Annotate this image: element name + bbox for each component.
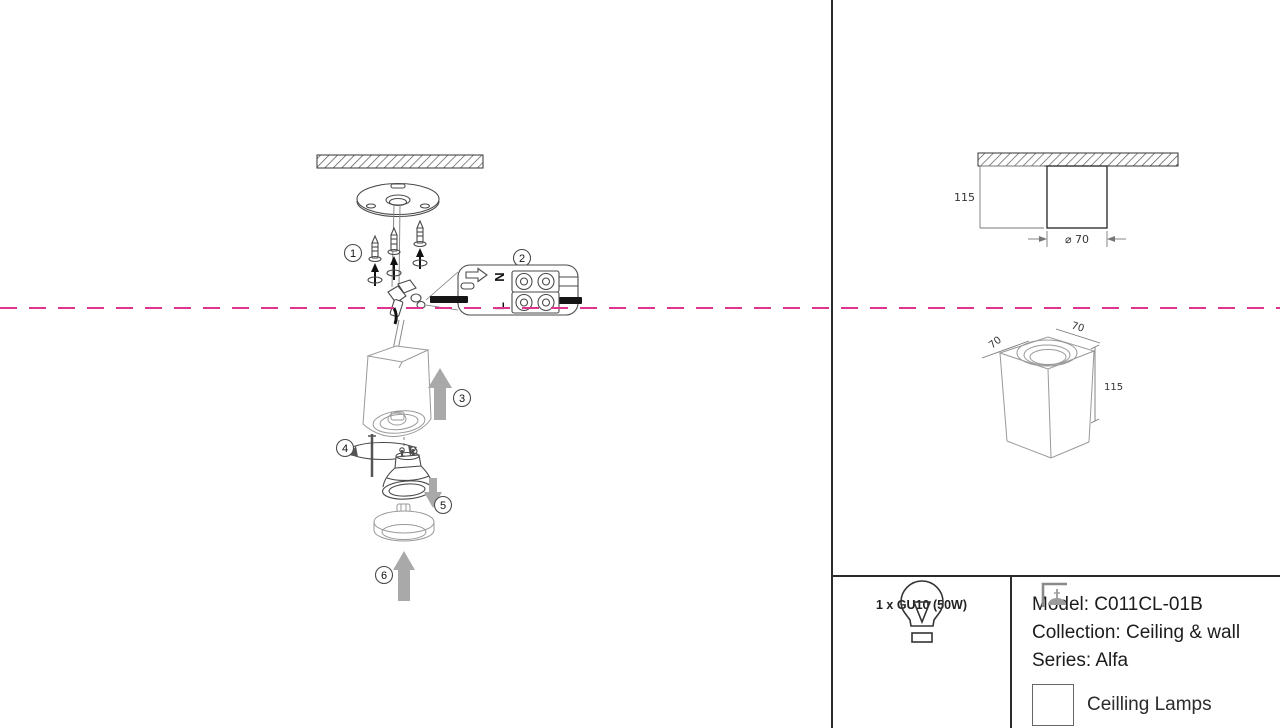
step-6-badge: 6: [376, 567, 393, 584]
svg-text:6: 6: [381, 570, 387, 582]
step-1-badge: 1: [345, 245, 362, 262]
arrow-up-step3-icon: [428, 368, 452, 420]
dimension-drawings: 115 ⌀ 70 70 70 115: [832, 0, 1280, 575]
dim-iso-height-label: 115: [1104, 382, 1123, 393]
ceiling-lamp-icon: [1032, 684, 1074, 726]
side-view-drawing: 115 ⌀ 70: [954, 153, 1178, 247]
instruction-sheet: 1 2 N: [0, 0, 1280, 728]
label-neutral: N: [492, 272, 507, 281]
product-info-panel: 1 x GU10 (50W) Model: C011CL-01B Collect…: [833, 577, 1280, 728]
svg-text:1: 1: [350, 248, 356, 260]
product-details-cell: Model: C011CL-01B Collection: Ceiling & …: [1010, 577, 1280, 728]
mounting-screws: [368, 221, 427, 286]
svg-text:4: 4: [342, 443, 348, 455]
category-label: Ceilling Lamps: [1087, 694, 1212, 716]
wire-connector: [388, 280, 425, 324]
dim-depth-label: 70: [987, 335, 1004, 352]
installation-diagram: 1 2 N: [0, 0, 832, 728]
bulb-spec-cell: 1 x GU10 (50W): [833, 577, 1010, 728]
dim-height-label: 115: [954, 191, 975, 204]
collection-line: Collection: Ceiling & wall: [1032, 619, 1280, 647]
svg-text:3: 3: [459, 393, 465, 405]
iso-view-drawing: 70 70 115: [982, 320, 1123, 458]
arrow-up-step6-icon: [393, 551, 415, 601]
lamp-body: [363, 346, 431, 437]
step-5-badge: 5: [435, 497, 452, 514]
dim-diameter-label: ⌀ 70: [1065, 233, 1089, 246]
series-line: Series: Alfa: [1032, 647, 1280, 675]
fold-guide-line: [0, 307, 1280, 309]
svg-text:5: 5: [440, 500, 446, 512]
ceiling-hatch: [978, 153, 1178, 166]
wire-neutral-black: [430, 296, 468, 303]
bulb-icon: [893, 577, 951, 651]
rotate-icon: [349, 434, 417, 477]
svg-text:2: 2: [519, 253, 525, 265]
canopy-plate: [357, 184, 439, 217]
trim-ring: [374, 504, 434, 541]
callout-lines: [426, 272, 458, 310]
step-3-badge: 3: [454, 390, 471, 407]
dim-width-label: 70: [1070, 320, 1085, 334]
category-row: Ceilling Lamps: [1032, 684, 1280, 726]
step-2-badge: 2: [514, 250, 531, 267]
step-4-badge: 4: [337, 440, 354, 457]
ceiling-hatch: [317, 155, 483, 168]
